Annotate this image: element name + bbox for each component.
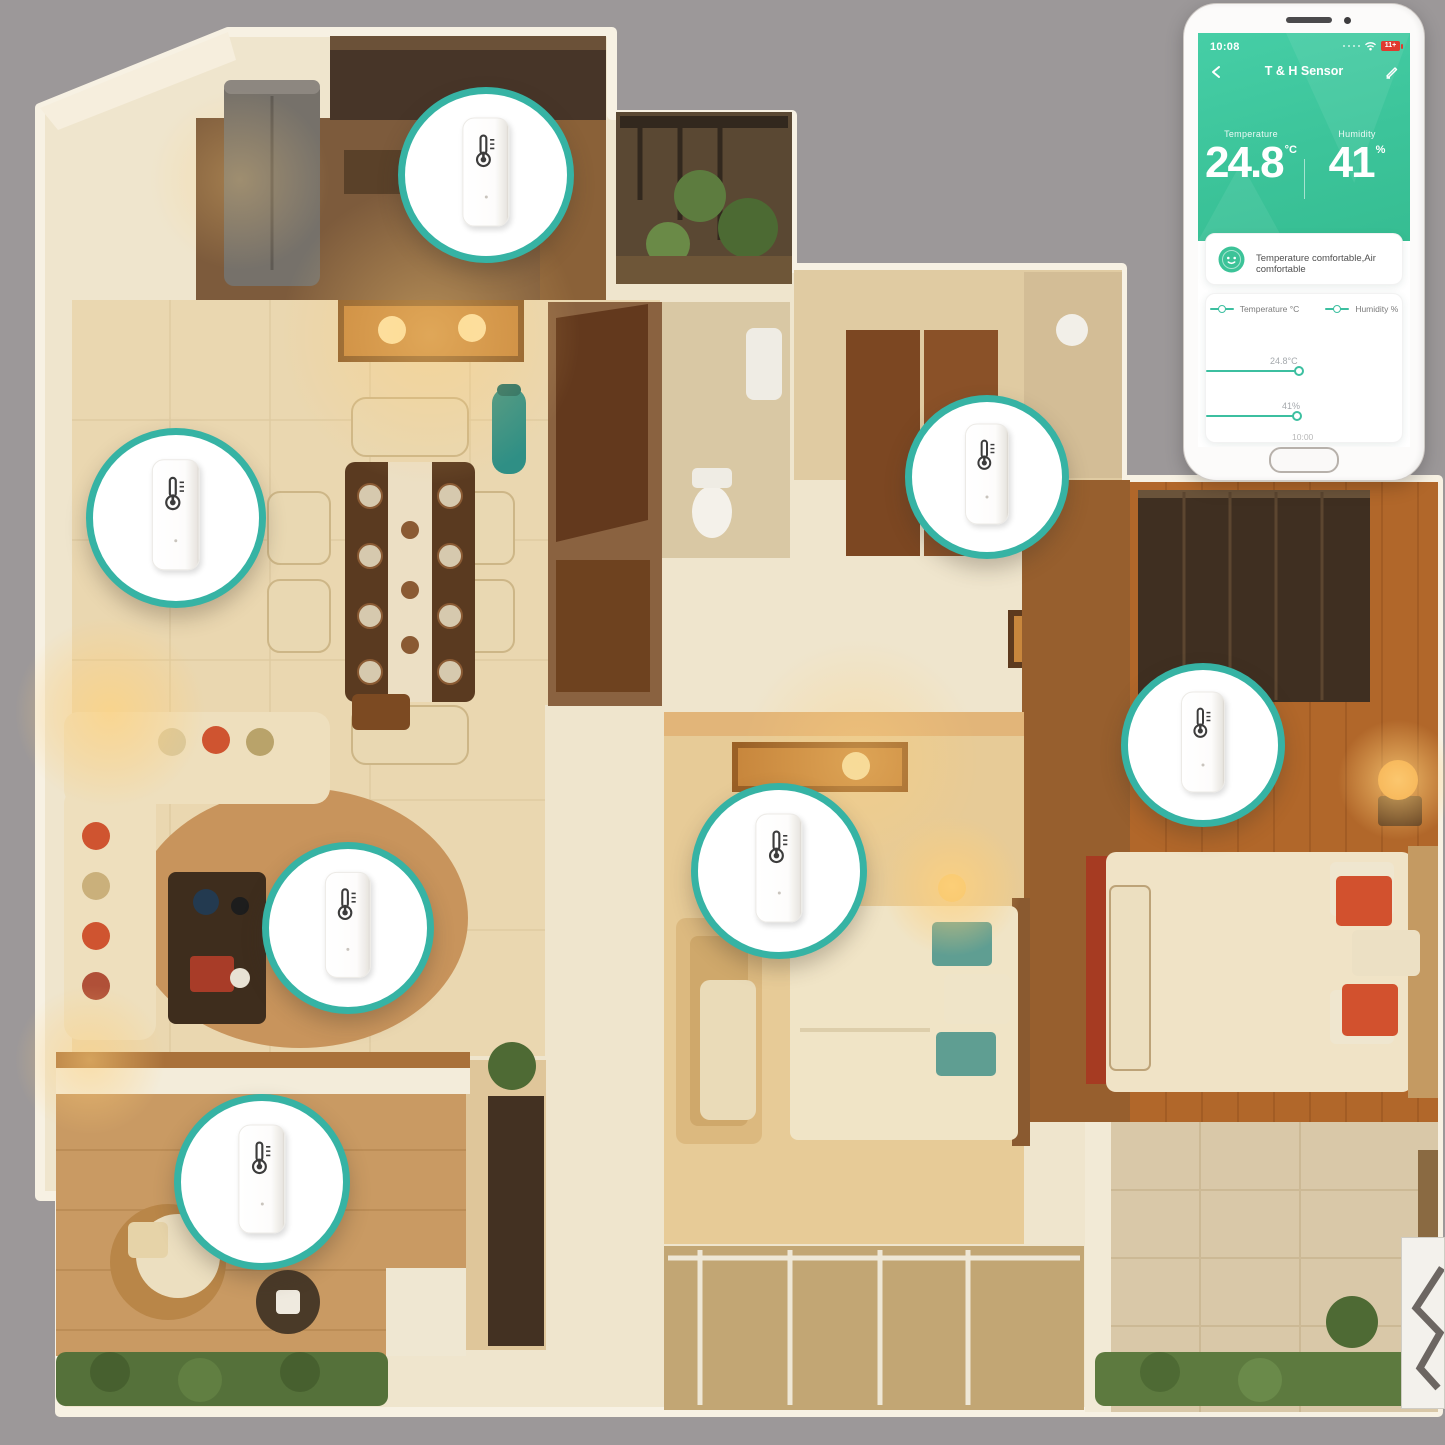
right-balcony-area — [1085, 1122, 1438, 1412]
thermometer-icon — [1191, 705, 1215, 739]
humidity-point-label: 41% — [1282, 401, 1300, 411]
sensor-callout — [174, 1094, 350, 1270]
app-header-panel: 10:08 11+ T & H Se — [1198, 33, 1410, 241]
led-dot — [1202, 764, 1205, 767]
corner-photo-card — [1401, 1237, 1445, 1409]
sensor-device — [152, 459, 200, 571]
product-image: 10:08 11+ T & H Se — [0, 0, 1445, 1445]
sensor-history-chart: 24.8°C 41% 10:00 — [1206, 294, 1402, 442]
phone-screen: 10:08 11+ T & H Se — [1198, 33, 1410, 447]
led-dot — [346, 948, 349, 951]
sensor-device — [965, 424, 1009, 525]
sensor-callout — [86, 428, 266, 608]
thermometer-icon — [975, 437, 999, 471]
sensor-device — [462, 117, 509, 226]
thermometer-icon — [473, 132, 499, 168]
led-dot — [260, 1202, 263, 1205]
temperature-point-marker — [1294, 366, 1304, 376]
phone-camera — [1344, 17, 1351, 24]
terrace-area — [616, 112, 792, 284]
battery-icon: 11+ — [1381, 41, 1400, 51]
sensor-callout — [1121, 663, 1285, 827]
sensor-callout — [398, 87, 574, 263]
tv-area — [460, 1042, 546, 1350]
temperature-point-label: 24.8°C — [1270, 356, 1298, 366]
page-title: T & H Sensor — [1198, 64, 1410, 78]
comfort-card: Temperature comfortable,Air comfortable — [1205, 233, 1403, 285]
thermometer-icon — [249, 1139, 275, 1175]
readings-divider — [1304, 159, 1305, 199]
led-dot — [175, 539, 178, 542]
wifi-icon — [1364, 41, 1377, 51]
phone-mockup: 10:08 11+ T & H Se — [1183, 3, 1425, 481]
led-dot — [986, 496, 989, 499]
x-axis-tick: 10:00 — [1292, 432, 1313, 442]
status-time: 10:08 — [1210, 41, 1240, 53]
temperature-label: Temperature — [1198, 129, 1304, 139]
humidity-series-line — [1206, 415, 1297, 417]
readings-row: Temperature 24.8°C Humidity 41% — [1198, 129, 1410, 187]
temperature-unit: °C — [1285, 144, 1297, 156]
led-dot — [777, 891, 780, 894]
humidity-value: 41 — [1329, 138, 1374, 187]
sensor-device — [1181, 692, 1225, 793]
humidity-label: Humidity — [1304, 129, 1410, 139]
comfort-status-text: Temperature comfortable,Air comfortable — [1256, 253, 1402, 275]
thermometer-icon — [163, 474, 190, 511]
home-button[interactable] — [1269, 447, 1339, 473]
status-bar: 10:08 11+ — [1198, 39, 1410, 55]
humidity-reading: Humidity 41% — [1304, 129, 1410, 187]
led-dot — [484, 195, 487, 198]
temperature-value: 24.8 — [1205, 138, 1283, 187]
thermometer-icon — [766, 828, 792, 864]
sensor-device — [238, 1124, 285, 1233]
humidity-point-marker — [1292, 411, 1302, 421]
sensor-device — [755, 813, 802, 922]
temperature-series-line — [1206, 370, 1299, 372]
chart-card: Temperature °C Humidity % 24.8°C 41% — [1205, 293, 1403, 443]
smiley-face-icon — [1218, 246, 1245, 273]
nav-bar: T & H Sensor — [1198, 61, 1410, 83]
sensor-callout — [905, 395, 1069, 559]
sensor-callout — [691, 783, 867, 959]
thermometer-icon — [335, 886, 361, 921]
edit-pencil-icon[interactable] — [1382, 63, 1400, 81]
sensor-callout — [262, 842, 434, 1014]
signal-dots-icon — [1343, 45, 1361, 48]
temperature-reading: Temperature 24.8°C — [1198, 129, 1304, 187]
sensor-device — [325, 872, 371, 978]
phone-speaker — [1286, 17, 1332, 23]
humidity-unit: % — [1376, 144, 1386, 156]
